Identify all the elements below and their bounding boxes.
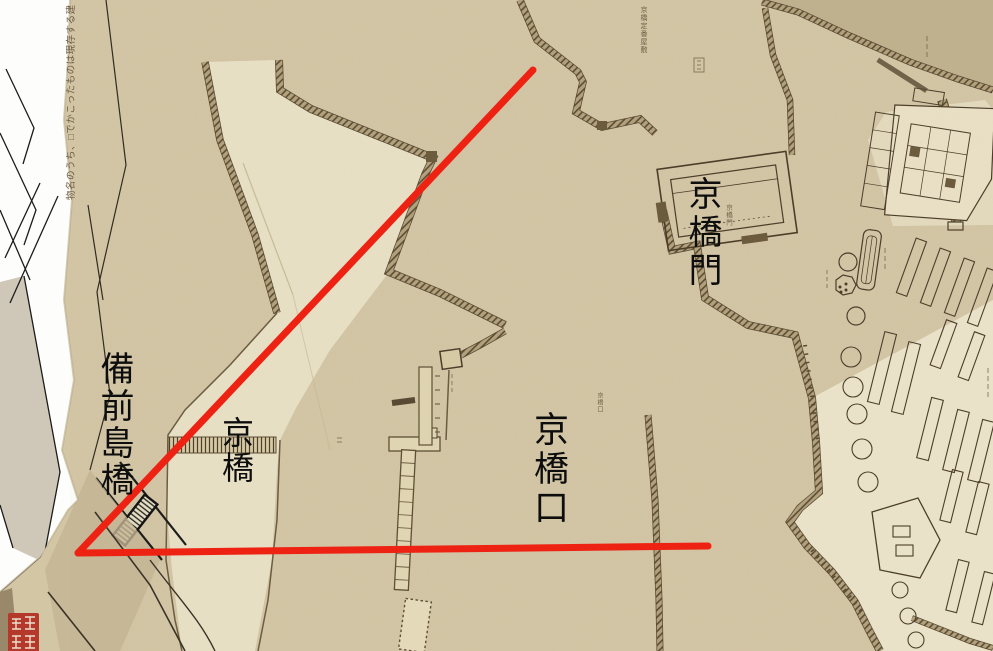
print-label-kyobashi-joban-yashiki: 京橋定番屋敷 [640, 6, 647, 54]
artist-seal [8, 613, 39, 651]
old-map-drawing [0, 0, 993, 651]
screenshot-root: 物名のうち、□でかこったものは現存する建 備前島橋 京橋 京橋口 京橋門 京橋定… [0, 0, 993, 651]
legend-note: 物名のうち、□でかこったものは現存する建 [63, 0, 77, 200]
label-bizenjimabashi: 備前島橋 [96, 351, 130, 499]
print-label-kyobashimon: 京橋門 [724, 204, 731, 227]
print-label-kyobashiguchi: 京橋口 [596, 392, 602, 413]
label-kyobashimon: 京橋門 [684, 176, 718, 290]
label-kyobashi: 京橋 [220, 416, 252, 486]
label-kyobashiguchi: 京橋口 [531, 411, 566, 528]
